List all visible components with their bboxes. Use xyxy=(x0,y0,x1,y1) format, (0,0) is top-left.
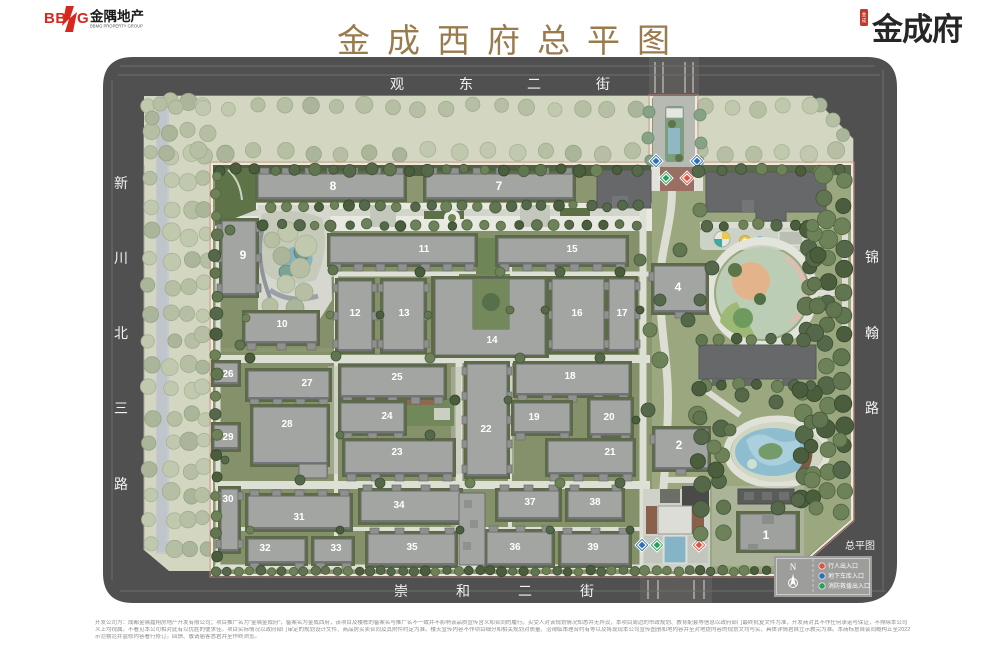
svg-text:18: 18 xyxy=(564,371,576,382)
svg-text:33: 33 xyxy=(330,543,342,554)
svg-text:三: 三 xyxy=(114,400,128,416)
svg-text:23: 23 xyxy=(391,447,403,458)
svg-text:16: 16 xyxy=(571,308,583,319)
svg-text:14: 14 xyxy=(486,335,498,346)
svg-text:22: 22 xyxy=(480,424,492,435)
svg-text:消防救援出入口: 消防救援出入口 xyxy=(828,582,870,590)
svg-text:9: 9 xyxy=(240,248,247,262)
svg-text:路: 路 xyxy=(114,476,128,492)
svg-text:BBMG PROPERTY GROUP: BBMG PROPERTY GROUP xyxy=(90,24,143,29)
svg-text:31: 31 xyxy=(293,512,305,523)
svg-text:东: 东 xyxy=(459,76,473,92)
svg-text:观: 观 xyxy=(390,76,404,92)
svg-text:行人出入口: 行人出入口 xyxy=(828,562,858,570)
svg-text:街: 街 xyxy=(580,583,594,599)
svg-text:38: 38 xyxy=(589,497,601,508)
svg-text:地下车库入口: 地下车库入口 xyxy=(828,572,864,580)
svg-text:25: 25 xyxy=(391,372,403,383)
svg-text:1: 1 xyxy=(763,528,770,542)
svg-text:崇: 崇 xyxy=(394,583,408,599)
svg-text:10: 10 xyxy=(276,319,288,330)
svg-text:32: 32 xyxy=(259,543,271,554)
svg-text:20: 20 xyxy=(603,412,615,423)
svg-text:13: 13 xyxy=(398,308,410,319)
svg-text:总平图: 总平图 xyxy=(845,539,875,552)
svg-text:34: 34 xyxy=(393,500,405,511)
svg-text:29: 29 xyxy=(222,432,234,443)
svg-text:金: 金 xyxy=(862,11,867,17)
svg-text:8: 8 xyxy=(330,179,337,193)
svg-text:N: N xyxy=(790,562,797,572)
svg-text:21: 21 xyxy=(604,447,616,458)
svg-text:27: 27 xyxy=(301,378,313,389)
svg-text:翰: 翰 xyxy=(865,325,879,341)
svg-text:成: 成 xyxy=(862,17,867,24)
svg-text:街: 街 xyxy=(596,76,610,92)
svg-text:新: 新 xyxy=(114,175,128,191)
svg-text:路: 路 xyxy=(865,400,879,416)
svg-text:G: G xyxy=(77,10,89,27)
svg-text:26: 26 xyxy=(222,369,234,380)
svg-text:35: 35 xyxy=(406,542,418,553)
svg-text:36: 36 xyxy=(509,542,521,553)
svg-text:川: 川 xyxy=(114,250,128,266)
svg-text:28: 28 xyxy=(281,419,293,430)
svg-text:锦: 锦 xyxy=(865,249,879,265)
svg-text:19: 19 xyxy=(528,412,540,423)
svg-text:4: 4 xyxy=(675,280,682,294)
svg-text:39: 39 xyxy=(587,542,599,553)
svg-text:7: 7 xyxy=(496,179,503,193)
svg-text:11: 11 xyxy=(419,244,430,255)
svg-text:2: 2 xyxy=(676,438,683,452)
svg-text:12: 12 xyxy=(349,308,361,319)
svg-text:二: 二 xyxy=(527,76,541,92)
svg-text:37: 37 xyxy=(524,497,536,508)
svg-text:17: 17 xyxy=(616,308,628,319)
svg-text:30: 30 xyxy=(222,494,234,505)
svg-text:15: 15 xyxy=(566,244,578,255)
svg-text:金隅地产: 金隅地产 xyxy=(89,8,144,24)
svg-text:金成府: 金成府 xyxy=(871,12,963,47)
svg-text:24: 24 xyxy=(381,411,393,422)
svg-text:和: 和 xyxy=(456,583,470,599)
svg-text:北: 北 xyxy=(114,325,128,341)
svg-text:二: 二 xyxy=(518,583,532,599)
